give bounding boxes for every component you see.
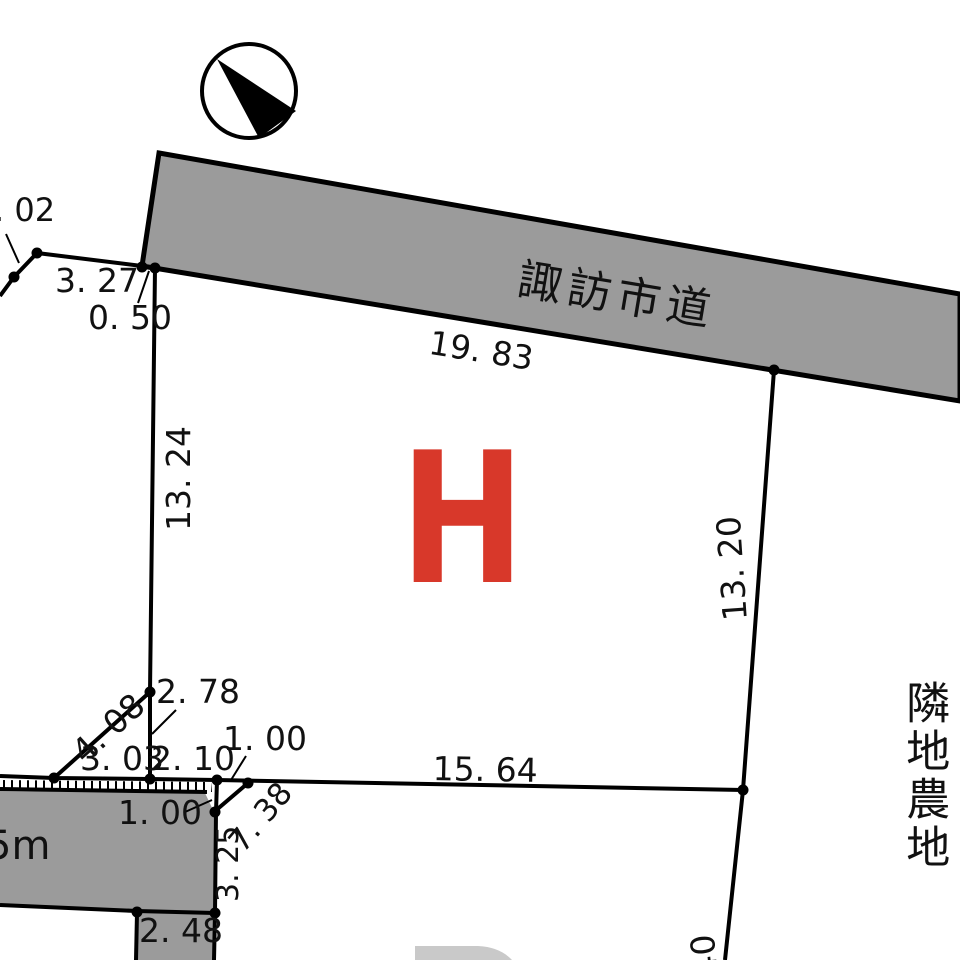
dim-13-24: 13. 24 xyxy=(162,426,195,531)
lower-road-width-label: 5m xyxy=(0,826,50,866)
dim-2-78: 2. 78 xyxy=(156,675,240,708)
slope-hatch xyxy=(0,780,212,792)
neighbor-land-label: 隣地農地 xyxy=(900,680,946,872)
dim-1-00-low: 1. 00 xyxy=(118,796,202,829)
lower-parcel-letter-shape xyxy=(415,946,512,960)
dim-partial-02: . 02 xyxy=(0,194,55,226)
north-arrow-icon xyxy=(202,44,296,138)
dim-40-partial: 40 xyxy=(686,933,723,960)
dim-3-27: 3. 27 xyxy=(55,264,139,297)
survey-drawing: 諏訪市道 隣地農地 H . 02 3. 27 0. 50 19. 83 13. … xyxy=(0,0,960,960)
dim-3-25: 3. 25 xyxy=(214,826,244,902)
dim-13-20: 13. 20 xyxy=(712,515,752,622)
dim-2-48: 2. 48 xyxy=(139,914,223,947)
dim-1-00-top: 1. 00 xyxy=(223,722,307,755)
dim-0-50: 0. 50 xyxy=(88,301,172,334)
dim-15-64: 15. 64 xyxy=(432,752,538,787)
parcel-h-label: H xyxy=(400,428,525,610)
